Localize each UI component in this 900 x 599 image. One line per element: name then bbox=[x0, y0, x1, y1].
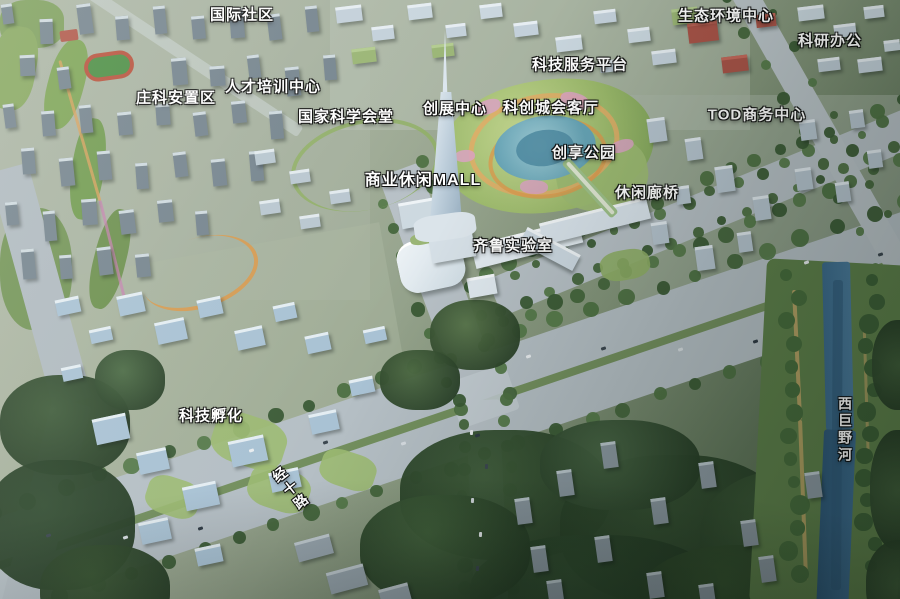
tree bbox=[520, 296, 534, 310]
tree bbox=[654, 387, 667, 400]
tree bbox=[727, 254, 742, 269]
label-innovation-exhibition-center: 创展中心 bbox=[423, 98, 487, 119]
tree bbox=[784, 452, 797, 465]
building bbox=[883, 39, 900, 52]
building bbox=[867, 149, 883, 169]
building bbox=[513, 21, 539, 38]
tree bbox=[510, 271, 519, 280]
tree bbox=[857, 402, 877, 422]
car bbox=[485, 464, 488, 469]
building bbox=[294, 534, 334, 563]
building bbox=[41, 110, 56, 136]
building bbox=[371, 25, 395, 42]
building bbox=[209, 65, 225, 86]
tree bbox=[759, 243, 776, 260]
tree-mass bbox=[380, 350, 460, 410]
building bbox=[335, 4, 363, 23]
tree bbox=[780, 428, 796, 444]
building bbox=[797, 4, 825, 21]
tree bbox=[869, 294, 885, 310]
label-international-community: 国际社区 bbox=[210, 4, 274, 25]
building bbox=[97, 150, 113, 180]
building bbox=[445, 23, 466, 38]
building bbox=[857, 57, 883, 74]
tree bbox=[657, 281, 671, 295]
building bbox=[59, 254, 73, 279]
label-sci-city-reception-hall: 科创城会客厅 bbox=[503, 97, 599, 118]
building bbox=[115, 16, 130, 41]
tree bbox=[546, 311, 563, 328]
tree bbox=[867, 206, 883, 222]
tree bbox=[791, 229, 809, 247]
building bbox=[849, 109, 865, 129]
tree bbox=[587, 239, 596, 248]
tree bbox=[267, 518, 279, 530]
tree bbox=[700, 171, 714, 185]
building bbox=[721, 54, 749, 73]
building bbox=[194, 543, 223, 566]
tree bbox=[717, 216, 726, 225]
tree bbox=[790, 495, 810, 515]
building bbox=[171, 57, 188, 85]
tree bbox=[459, 419, 470, 430]
tree bbox=[862, 426, 879, 443]
label-qilu-laboratory: 齐鲁实验室 bbox=[473, 235, 553, 256]
building bbox=[407, 3, 433, 21]
building bbox=[817, 57, 840, 73]
building bbox=[289, 169, 311, 185]
tree bbox=[723, 365, 736, 378]
tree bbox=[785, 382, 801, 398]
tree bbox=[583, 302, 598, 317]
building bbox=[211, 158, 227, 186]
building bbox=[117, 112, 133, 136]
building bbox=[191, 15, 206, 39]
tree bbox=[370, 485, 383, 498]
tree bbox=[718, 227, 734, 243]
tree bbox=[779, 541, 799, 561]
building bbox=[21, 248, 36, 279]
car bbox=[471, 498, 474, 503]
tree bbox=[791, 565, 809, 583]
label-eco-environment-center: 生态环境中心 bbox=[678, 5, 774, 26]
tree bbox=[738, 27, 750, 39]
building bbox=[135, 253, 152, 278]
building bbox=[254, 149, 276, 166]
tree bbox=[757, 168, 769, 180]
tree bbox=[790, 520, 805, 535]
car bbox=[479, 532, 482, 537]
building bbox=[59, 157, 75, 186]
tree bbox=[838, 163, 849, 174]
tree-mass bbox=[540, 420, 700, 510]
label-xijuye-river: 西巨野河 bbox=[835, 396, 855, 464]
building bbox=[863, 5, 884, 19]
tree bbox=[525, 309, 538, 322]
car bbox=[470, 430, 473, 435]
tree bbox=[775, 144, 785, 154]
tree bbox=[788, 476, 800, 488]
building bbox=[835, 181, 852, 203]
label-sci-tech-service-platform: 科技服务平台 bbox=[532, 54, 628, 75]
tree bbox=[818, 158, 830, 170]
tree bbox=[870, 104, 885, 119]
label-tech-incubation: 科技孵化 bbox=[179, 405, 243, 426]
tree bbox=[780, 269, 792, 281]
tree bbox=[824, 127, 835, 138]
tree bbox=[704, 186, 714, 196]
building bbox=[593, 9, 616, 25]
building bbox=[269, 110, 284, 139]
building bbox=[627, 27, 651, 44]
building bbox=[651, 221, 670, 245]
aerial-masterplan-image: 国际社区生态环境中心科研办公人才培训中心庄科安置区国家科学会堂科技服务平台创展中… bbox=[0, 0, 900, 599]
building bbox=[737, 231, 754, 253]
tree-mass bbox=[95, 350, 165, 410]
building bbox=[81, 198, 98, 225]
building bbox=[694, 245, 715, 271]
tree bbox=[830, 219, 845, 234]
tree bbox=[785, 360, 798, 373]
tree bbox=[532, 260, 540, 268]
tree bbox=[233, 531, 246, 544]
building bbox=[5, 201, 20, 225]
building bbox=[135, 163, 149, 189]
building bbox=[646, 117, 667, 143]
tree bbox=[197, 436, 211, 450]
tree bbox=[761, 60, 771, 70]
tree bbox=[893, 153, 900, 167]
label-tod-business-center: TOD商务中心 bbox=[708, 104, 806, 125]
car bbox=[476, 566, 479, 571]
building bbox=[651, 49, 677, 66]
tree bbox=[884, 210, 892, 218]
building bbox=[351, 47, 377, 65]
tree bbox=[570, 289, 584, 303]
label-talent-training-center: 人才培训中心 bbox=[225, 76, 321, 97]
tree bbox=[858, 131, 866, 139]
tree bbox=[808, 78, 817, 87]
building bbox=[714, 165, 735, 193]
building bbox=[326, 563, 368, 594]
tree bbox=[618, 289, 634, 305]
building bbox=[323, 54, 337, 79]
tree bbox=[786, 404, 803, 421]
tree bbox=[865, 180, 874, 189]
building bbox=[555, 34, 583, 52]
building bbox=[431, 43, 454, 59]
building bbox=[39, 18, 53, 43]
label-zhuangke-resettlement-area: 庄科安置区 bbox=[136, 87, 216, 108]
building bbox=[479, 3, 503, 20]
tree bbox=[689, 378, 701, 390]
tree bbox=[162, 555, 176, 569]
label-research-office: 科研办公 bbox=[798, 30, 862, 51]
tree bbox=[615, 403, 630, 418]
building bbox=[795, 167, 814, 191]
tree-mass bbox=[360, 495, 530, 599]
label-national-science-hall: 国家科学会堂 bbox=[298, 106, 394, 127]
tree bbox=[572, 273, 584, 285]
tree bbox=[793, 193, 807, 207]
flower-patch bbox=[520, 179, 549, 194]
building bbox=[20, 55, 36, 76]
tree bbox=[856, 448, 873, 465]
tree bbox=[866, 274, 878, 286]
building bbox=[685, 137, 704, 161]
building bbox=[119, 209, 137, 235]
tree bbox=[846, 144, 859, 157]
building bbox=[231, 100, 247, 123]
building bbox=[752, 195, 771, 221]
tree bbox=[388, 223, 399, 234]
tree bbox=[858, 338, 874, 354]
building bbox=[21, 148, 36, 175]
building bbox=[259, 199, 281, 216]
tree bbox=[786, 336, 802, 352]
building bbox=[299, 214, 321, 230]
building bbox=[195, 210, 209, 235]
building bbox=[329, 189, 351, 205]
tree bbox=[411, 302, 425, 316]
building bbox=[157, 199, 174, 222]
tree bbox=[547, 294, 563, 310]
label-leisure-corridor-bridge: 休闲廊桥 bbox=[615, 182, 679, 203]
tree bbox=[336, 497, 348, 509]
label-commercial-leisure-mall: 商业休闲MALL bbox=[365, 166, 481, 190]
tree bbox=[859, 314, 879, 334]
tree bbox=[689, 270, 701, 282]
label-chuangxiang-park: 创享公园 bbox=[552, 142, 616, 163]
tree bbox=[747, 154, 760, 167]
